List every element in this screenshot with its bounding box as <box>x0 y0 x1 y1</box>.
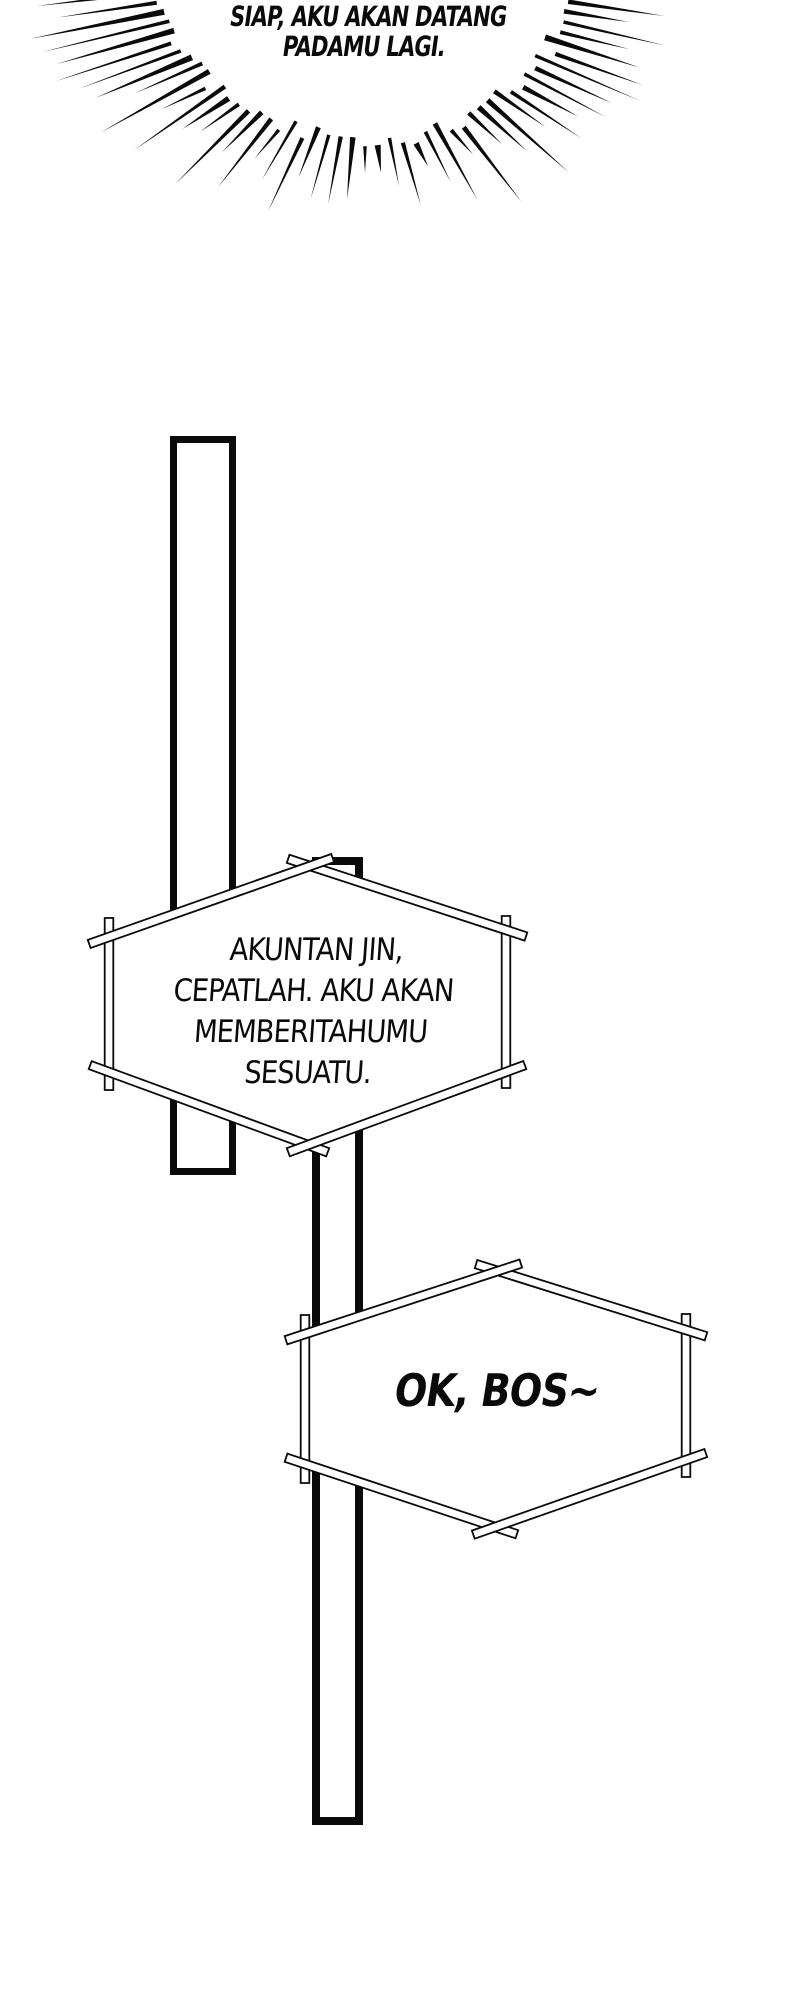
burst-spike <box>388 138 399 186</box>
bubble-text-line: CEPATLAH. AKU AKAN <box>172 971 455 1012</box>
burst-spike <box>522 85 579 117</box>
bubble-ok-bos-text: OK, BOS~ <box>391 1366 603 1416</box>
burst-spike <box>563 20 664 45</box>
burst-spike <box>101 69 211 132</box>
burst-spike <box>328 136 343 204</box>
comic-page: SIAP, AKU AKAN DATANG PADAMU LAGI. AKUNT… <box>0 0 800 2000</box>
burst-spike <box>375 145 381 173</box>
burst-text-line: PADAMU LAGI. <box>224 32 504 62</box>
bubble-text-line: MEMBERITAHUMU <box>169 1012 452 1053</box>
burst-spike <box>401 142 421 205</box>
burst-text-line: SIAP, AKU AKAN DATANG <box>228 2 508 32</box>
bubble-text-line: AKUNTAN JIN, <box>175 930 458 971</box>
burst-spike <box>311 134 331 198</box>
burst-spike <box>134 85 226 151</box>
burst-spike <box>564 9 629 22</box>
burst-spike <box>31 9 165 39</box>
bubble-akuntan-text: AKUNTAN JIN, CEPATLAH. AKU AKAN MEMBERIT… <box>166 930 457 1094</box>
bubble-edge-band <box>105 918 114 1090</box>
burst-spike <box>299 126 321 177</box>
bubble-text-line: OK, BOS~ <box>391 1366 603 1416</box>
bubble-edge-band <box>682 1314 691 1477</box>
bubble-text-line: SESUATU. <box>166 1053 449 1094</box>
burst-spike <box>268 137 304 211</box>
bubble-edge-band <box>502 916 511 1088</box>
burst-spike <box>424 131 451 182</box>
burst-spike <box>363 146 367 173</box>
burst-spike <box>414 142 429 166</box>
burst-spike <box>96 55 193 98</box>
burst-spike <box>175 109 250 184</box>
burst-spike <box>486 98 569 172</box>
burst-spike <box>347 137 356 199</box>
burst-bubble-text: SIAP, AKU AKAN DATANG PADAMU LAGI. <box>224 2 509 62</box>
burst-spike <box>262 120 298 179</box>
burst-spike <box>535 54 640 101</box>
